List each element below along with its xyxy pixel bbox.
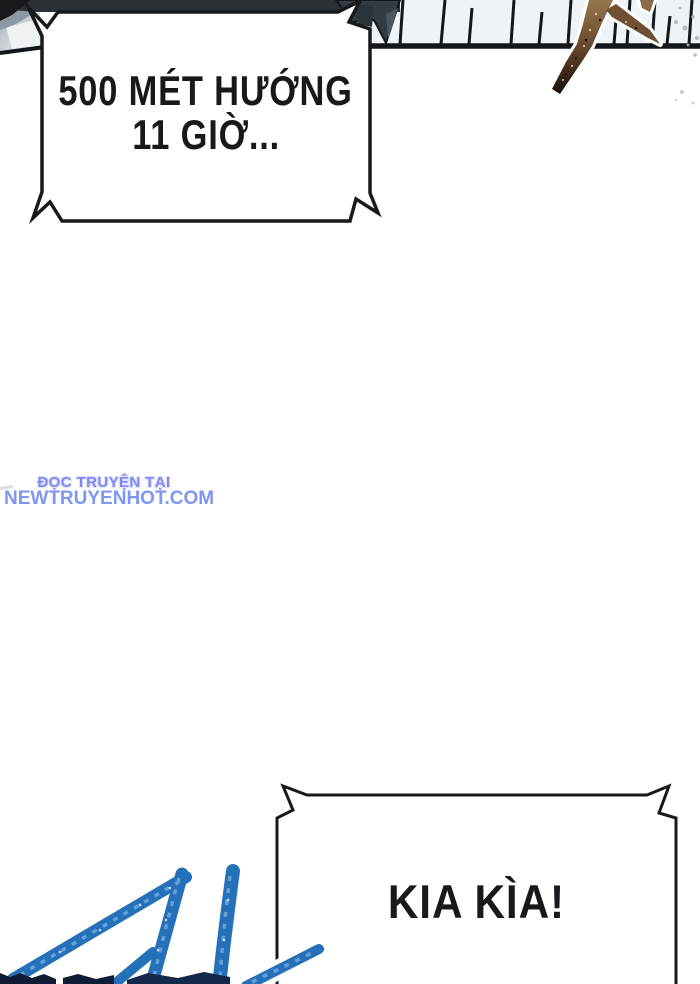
site-watermark: ĐỌC TRUYỆN TẠI NEWTRUYENHOT.COM [4,474,204,507]
watermark-site-name: NEWTRUYENHOT.COM [4,491,204,507]
speech-text-line: KIA KÌA! [388,876,565,928]
blue-crayon-sketch [0,871,319,984]
comic-page: 500 MÉT HƯỚNG 11 GIỜ... ĐỌC TRUYỆN TẠI N… [0,0,700,984]
speech-bubble-bottom: KIA KÌA! [277,795,676,984]
speech-bubble-top: 500 MÉT HƯỚNG 11 GIỜ... [42,12,370,221]
speech-text-line: 11 GIỜ... [132,109,280,161]
